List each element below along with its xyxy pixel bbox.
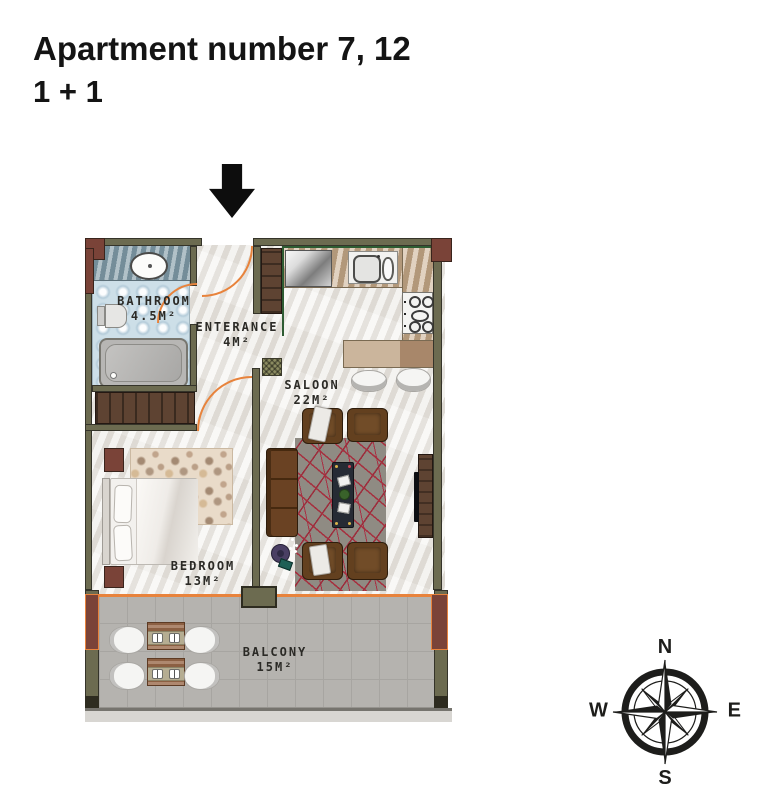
table-dot	[348, 522, 351, 525]
balcony-outer-rail	[85, 708, 452, 722]
balcony-column-west	[85, 594, 99, 650]
page-title: Apartment number 7, 12	[33, 30, 411, 68]
balcony-table	[147, 622, 185, 650]
stove-icon	[402, 292, 433, 334]
room-label-saloon: SALOON 22M²	[284, 378, 339, 408]
room-label-bathroom: BATHROOM 4.5M²	[117, 294, 191, 324]
bar-chair	[351, 370, 387, 392]
bathtub-drain	[110, 372, 117, 379]
burner	[409, 321, 421, 333]
fridge	[285, 250, 332, 287]
balcony-footing-west	[85, 696, 99, 708]
balcony-footing-east	[434, 696, 448, 708]
doormat	[262, 358, 282, 376]
table-plant-icon	[339, 489, 350, 500]
balcony-window-line-west	[99, 594, 241, 597]
table-dot	[348, 465, 351, 468]
room-area: 13M²	[171, 574, 236, 589]
compass-rose-icon: N S W E	[587, 634, 743, 790]
balcony-chair	[109, 662, 145, 690]
floor-dots	[291, 538, 294, 541]
closet-wardrobe	[95, 392, 195, 424]
wall-bedroom-north	[85, 424, 197, 431]
wall-top-right	[253, 238, 452, 246]
nightstand	[104, 448, 124, 472]
bar-chair	[396, 368, 431, 392]
table-paper	[337, 475, 351, 488]
wall-bedroom-saloon-divider	[252, 368, 260, 594]
wall-entry-kitchen-divider	[253, 246, 261, 314]
breakfast-bar	[343, 340, 435, 368]
stove-knob	[404, 325, 406, 327]
toilet	[97, 306, 105, 326]
room-name: SALOON	[284, 378, 339, 393]
bathtub	[99, 338, 188, 388]
wall-east	[433, 238, 442, 590]
room-name: ENTERANCE	[195, 320, 278, 335]
column-northeast	[431, 238, 452, 262]
compass-east-label: E	[728, 700, 741, 723]
side-table-inner	[277, 550, 284, 557]
kitchen-sink	[348, 251, 398, 284]
room-area: 4.5M²	[117, 309, 191, 324]
tv-screen-icon	[414, 472, 419, 522]
table-dot	[335, 465, 338, 468]
column-west	[85, 248, 94, 294]
balcony-column-east	[431, 594, 448, 650]
compass-north-label: N	[658, 636, 672, 659]
burner-center	[411, 310, 429, 322]
compass-west-label: W	[589, 700, 608, 723]
kitchen-window-line	[282, 246, 435, 248]
armchair	[347, 542, 388, 580]
floor-plan: BATHROOM 4.5M² ENTERANCE 4M² SALOON 22M²…	[85, 238, 452, 722]
armchair	[347, 408, 388, 442]
balcony-chair	[184, 626, 220, 654]
bed-blanket	[136, 479, 198, 564]
sofa	[266, 448, 298, 537]
page-subtitle: 1 + 1	[33, 74, 411, 110]
balcony-chair	[184, 662, 220, 690]
balcony-table	[147, 658, 185, 686]
room-area: 4M²	[195, 335, 278, 350]
table-paper	[337, 502, 351, 514]
entrance-arrow-icon	[209, 164, 255, 218]
place-setting	[152, 669, 163, 679]
place-setting	[152, 633, 163, 643]
washbasin	[130, 252, 168, 280]
room-label-enterance: ENTERANCE 4M²	[195, 320, 278, 350]
room-name: BALCONY	[243, 645, 308, 660]
room-label-bedroom: BEDROOM 13M²	[171, 559, 236, 589]
place-setting	[169, 633, 180, 643]
bed	[110, 478, 197, 565]
room-label-balcony: BALCONY 15M²	[243, 645, 308, 675]
room-area: 22M²	[284, 393, 339, 408]
header: Apartment number 7, 12 1 + 1	[33, 30, 411, 110]
nightstand	[104, 566, 124, 588]
balcony-chair	[109, 626, 145, 654]
wall-bathroom-south	[92, 385, 197, 392]
place-setting	[169, 669, 180, 679]
balcony-column-center	[241, 586, 277, 608]
pillow	[113, 485, 132, 524]
sink-knob	[377, 255, 380, 258]
balcony-window-line-east	[277, 594, 431, 597]
sink-faucet-icon	[382, 257, 394, 281]
kitchen-window-line-side	[282, 248, 284, 336]
entry-cabinet	[261, 248, 282, 314]
basin-drain	[148, 264, 152, 268]
room-name: BEDROOM	[171, 559, 236, 574]
bed-headboard	[102, 478, 110, 565]
room-area: 15M²	[243, 660, 308, 675]
burner	[409, 296, 421, 308]
wall-bathroom-east-upper	[190, 246, 197, 286]
sink-basin	[353, 255, 381, 283]
tv-board	[418, 454, 433, 538]
compass-south-label: S	[658, 767, 671, 790]
table-dot	[335, 522, 338, 525]
page: Apartment number 7, 12 1 + 1	[0, 0, 783, 800]
coffee-table	[332, 462, 354, 528]
pillow	[113, 525, 133, 562]
stove-knob	[404, 301, 406, 303]
room-name: BATHROOM	[117, 294, 191, 309]
stove-knob	[404, 313, 406, 315]
